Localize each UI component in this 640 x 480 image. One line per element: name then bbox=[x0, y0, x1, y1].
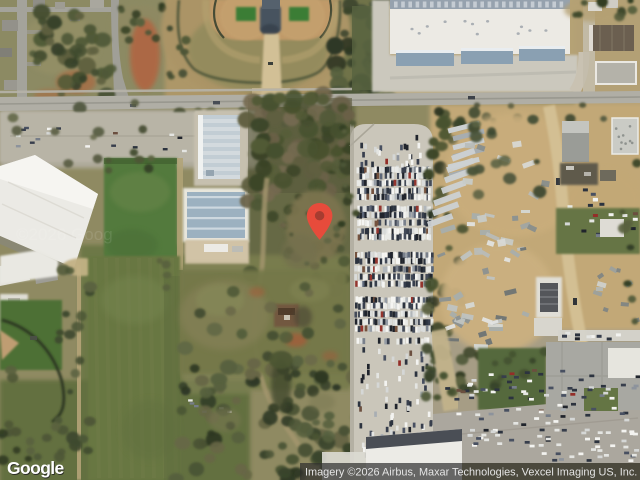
svg-text:©2026 Goog: ©2026 Goog bbox=[16, 225, 113, 244]
svg-text:Imagery ©2026 Airbus, Maxar Te: Imagery ©2026 Airbus, Maxar Technologies… bbox=[305, 467, 637, 479]
svg-text:Google: Google bbox=[7, 458, 65, 478]
